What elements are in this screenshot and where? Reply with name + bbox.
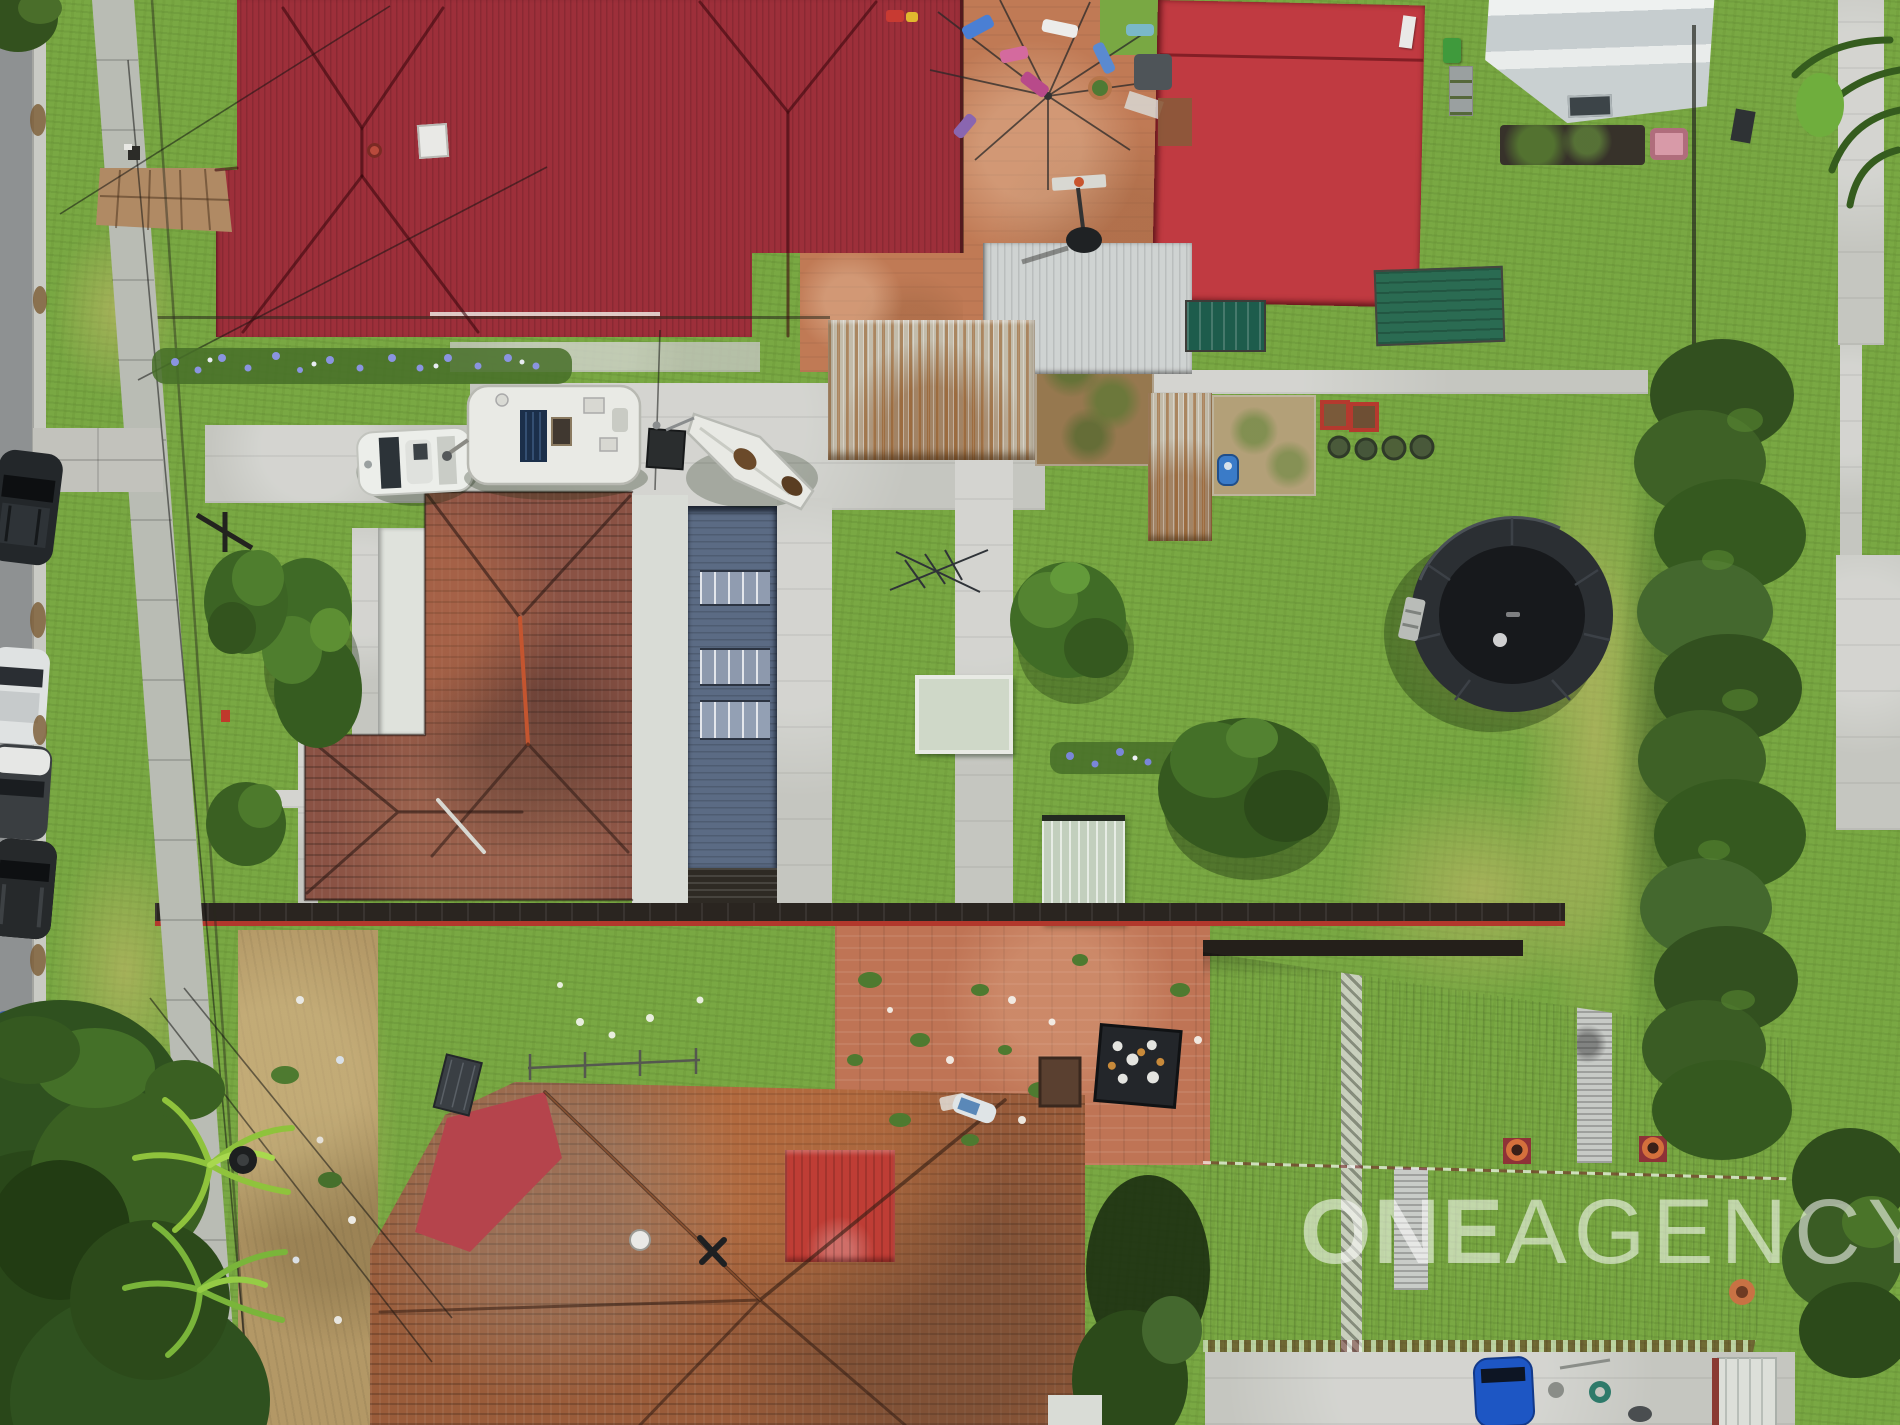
forecourt-items <box>1548 1360 1652 1422</box>
watermark-brand-bold: ONE <box>1300 1181 1505 1283</box>
brown-cabinet <box>1040 1058 1080 1106</box>
roof-antenna <box>700 1238 724 1264</box>
lawn-debris <box>557 982 704 1039</box>
tree-verge-2 <box>206 782 286 866</box>
conifer-hedge-row <box>1634 339 1806 1160</box>
box-trailer <box>647 421 686 469</box>
basketball-hoop <box>1022 174 1106 262</box>
washing-on-line <box>952 13 1164 140</box>
blue-car-bottom-right <box>1473 1356 1534 1425</box>
dense-tree-canopy <box>0 1000 270 1425</box>
watermark-brand-light: AGENCY <box>1505 1181 1900 1283</box>
parked-car-suv-roofracks <box>0 837 58 940</box>
dirt-yard-litter <box>271 996 356 1324</box>
tv-antenna <box>890 550 988 592</box>
planter-pots <box>1329 436 1433 459</box>
small-tree-top-right <box>1796 73 1844 137</box>
clothesline-bottom <box>528 1048 700 1080</box>
solar-panel-on-lawn <box>434 1054 482 1115</box>
roof-ridges-bottom <box>380 1092 1005 1425</box>
agapanthus-bed-front <box>152 348 572 384</box>
roof-ridges-topleft <box>216 2 876 336</box>
aerial-photo: ONEAGENCY <box>0 0 1900 1425</box>
satellite-dish <box>630 1230 650 1250</box>
tree-verge-1 <box>204 550 288 654</box>
terracotta-pot <box>1736 1286 1748 1298</box>
white-car-driveway <box>354 427 482 509</box>
white-blue-item <box>950 1092 998 1126</box>
parked-car-dark-suv <box>0 448 65 567</box>
white-shed-bottom-right <box>1712 1358 1776 1425</box>
tree-top-left-corner <box>0 0 62 52</box>
tree-backyard-2 <box>1158 718 1340 880</box>
junk-trailer <box>1095 1025 1181 1108</box>
trees-between-houses <box>1048 1175 1210 1425</box>
caravan <box>442 386 648 500</box>
tree-backyard-1 <box>1010 562 1134 704</box>
parked-car-dark-white-bonnet <box>0 743 53 841</box>
watermark-logo: ONEAGENCY <box>1300 1186 1900 1278</box>
boat-on-trailer <box>666 414 818 509</box>
black-trampoline <box>1384 518 1613 732</box>
blue-toy-car <box>1218 455 1238 485</box>
tyre-on-path <box>237 1154 249 1166</box>
